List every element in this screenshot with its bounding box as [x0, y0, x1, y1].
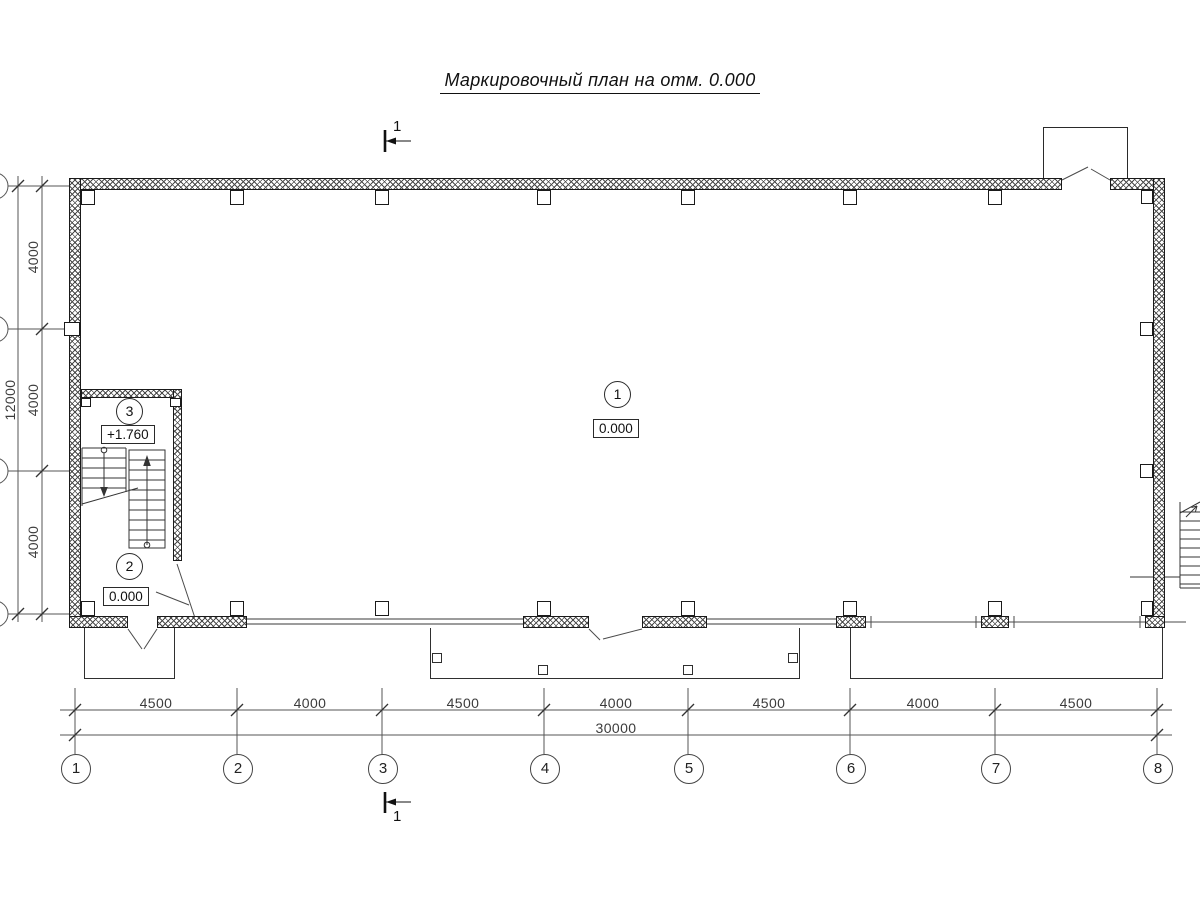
wall-bottom-segment — [157, 616, 247, 628]
column — [537, 190, 551, 205]
room-elevation-1: 0.000 — [593, 419, 639, 438]
floor-plan-canvas: Маркировочный план на отм. 0.000 1 1 1 0… — [0, 0, 1200, 900]
room-marker-3: 3 — [116, 398, 143, 425]
room-elevation-2: 0.000 — [103, 587, 149, 606]
axis-bubble-7: 7 — [981, 754, 1011, 784]
column — [681, 601, 695, 616]
dim-total-height: 12000 — [3, 360, 17, 440]
column — [375, 601, 389, 616]
porch-post — [788, 653, 798, 663]
wall-bottom-segment — [69, 616, 128, 628]
column — [681, 190, 695, 205]
stairs-up-flight — [129, 450, 165, 548]
porch-center — [430, 628, 800, 679]
dim-span-6-7: 4000 — [883, 695, 963, 711]
column — [230, 190, 244, 205]
axis-bubble-6: 6 — [836, 754, 866, 784]
dim-row-span-3: 4000 — [26, 502, 40, 582]
axis-bubble-2: 2 — [223, 754, 253, 784]
wall-bottom-segment — [642, 616, 707, 628]
open-edge-lines — [866, 616, 1186, 628]
column — [375, 190, 389, 205]
wall-pilaster — [1140, 464, 1153, 478]
room-marker-1: 1 — [604, 381, 631, 408]
exterior-stair — [1130, 502, 1200, 588]
wall-right — [1153, 178, 1165, 628]
section-label-bottom: 1 — [393, 808, 401, 825]
dim-row-span-1: 4000 — [26, 217, 40, 297]
wall-top-left-segment — [69, 178, 1062, 190]
porch-post — [538, 665, 548, 675]
dim-span-2-3: 4000 — [270, 695, 350, 711]
dim-span-3-4: 4500 — [423, 695, 503, 711]
column — [988, 601, 1002, 616]
axis-bubble-5: 5 — [674, 754, 704, 784]
wall-left — [69, 178, 81, 628]
stairwell-corner-post — [81, 398, 91, 407]
dim-span-4-5: 4000 — [576, 695, 656, 711]
section-label-top: 1 — [393, 118, 401, 135]
column — [537, 601, 551, 616]
porch-post — [683, 665, 693, 675]
porch-post — [432, 653, 442, 663]
door-swing-lines — [128, 167, 1110, 649]
dim-total-width: 30000 — [576, 720, 656, 736]
axis-bubble-1: 1 — [61, 754, 91, 784]
drawing-title: Маркировочный план на отм. 0.000 — [440, 70, 759, 94]
column — [81, 190, 95, 205]
axis-bubble-4: 4 — [530, 754, 560, 784]
room-marker-2: 2 — [116, 553, 143, 580]
column — [843, 190, 857, 205]
stairs-down-flight — [82, 447, 138, 506]
wall-bottom-segment — [981, 616, 1009, 628]
column — [81, 601, 95, 616]
dim-span-1-2: 4500 — [116, 695, 196, 711]
stairwell-corner-post — [170, 398, 181, 407]
dim-row-span-2: 4000 — [26, 360, 40, 440]
column — [988, 190, 1002, 205]
wall-bottom-segment — [836, 616, 866, 628]
stairwell-wall-top — [81, 389, 181, 398]
entrance-vestibule — [1043, 127, 1128, 180]
dim-span-7-8: 4500 — [1036, 695, 1116, 711]
column — [843, 601, 857, 616]
porch-left — [84, 628, 175, 679]
porch-right — [850, 628, 1163, 679]
column — [1141, 190, 1153, 204]
wall-pilaster — [64, 322, 80, 336]
axis-bubble-3: 3 — [368, 754, 398, 784]
wall-bottom-segment — [1145, 616, 1165, 628]
room-elevation-3: +1.760 — [101, 425, 155, 444]
wall-pilaster — [1140, 322, 1153, 336]
column — [1141, 601, 1153, 616]
drawing-title-row: Маркировочный план на отм. 0.000 — [0, 70, 1200, 94]
axis-bubble-8: 8 — [1143, 754, 1173, 784]
wall-bottom-segment — [523, 616, 589, 628]
column — [230, 601, 244, 616]
dim-span-5-6: 4500 — [729, 695, 809, 711]
stairwell-wall-right — [173, 389, 182, 561]
